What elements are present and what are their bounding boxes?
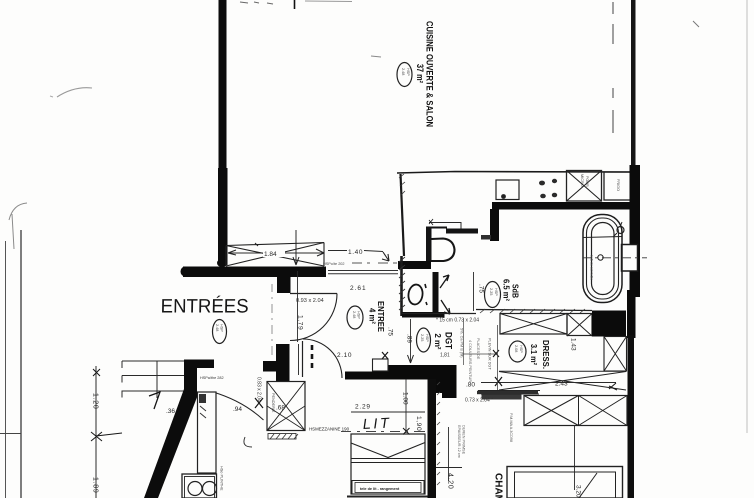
svg-text:P.M.MA A.3CD98: P.M.MA A.3CD98: [509, 413, 513, 442]
svg-text:4 COULEURS PEINTUR: 4 COULEURS PEINTUR: [468, 340, 472, 382]
svg-text:* 15 cm 0.73 x 2.04: * 15 cm 0.73 x 2.04: [436, 318, 479, 324]
svg-text:.36: .36: [166, 408, 175, 415]
svg-text:PLACES DE: PLACES DE: [476, 338, 480, 360]
svg-text:HSP: HSP: [425, 334, 429, 342]
svg-text:1,90: 1,90: [415, 416, 422, 431]
svg-text:2.48: 2.48: [401, 68, 405, 75]
svg-text:CUISINE OUVERTE & SALON: CUISINE OUVERTE & SALON: [425, 21, 435, 127]
svg-text:37 m²: 37 m²: [415, 64, 425, 83]
svg-text:2.43: 2.43: [555, 381, 568, 388]
svg-text:1.00: 1.00: [402, 392, 409, 405]
svg-text:2.08: 2.08: [514, 345, 518, 352]
svg-text:ENTRÉES: ENTRÉES: [160, 295, 248, 318]
svg-text:EPAISSEUR 12 cm: EPAISSEUR 12 cm: [457, 425, 461, 458]
svg-text:FOUR: FOUR: [585, 176, 589, 187]
svg-text:HSPo/te 202: HSPo/te 202: [323, 262, 345, 266]
svg-text:1.84: 1.84: [264, 251, 277, 258]
svg-text:LIT: LIT: [362, 416, 392, 433]
svg-text:HSP: HSP: [494, 288, 498, 296]
svg-text:DRESS.: DRESS.: [541, 340, 551, 369]
svg-text:SdB: SdB: [511, 284, 521, 298]
svg-text:2.25: 2.25: [420, 334, 424, 341]
svg-text:1.43: 1.43: [570, 338, 577, 351]
svg-text:2 m²: 2 m²: [433, 334, 443, 350]
svg-text:ENTREE: ENTREE: [376, 301, 386, 332]
svg-text:tele de lit - rangement: tele de lit - rangement: [360, 487, 400, 491]
svg-text:0.93 x 2.04: 0.93 x 2.04: [296, 298, 324, 304]
svg-text:1,81: 1,81: [440, 353, 450, 359]
svg-text:0.73 x 2.04 *: 0.73 x 2.04 *: [465, 398, 493, 404]
svg-text:2.61: 2.61: [350, 285, 367, 292]
svg-text:PENDERIE: PENDERIE: [271, 393, 275, 413]
svg-text:.75: .75: [387, 327, 394, 336]
svg-text:.75: .75: [478, 284, 485, 293]
svg-text:2.25: 2.25: [489, 288, 493, 295]
svg-text:MICRO: MICRO: [580, 174, 584, 187]
svg-text:1.40: 1.40: [348, 249, 363, 256]
svg-text:CHAMBRE: CHAMBRE: [493, 473, 504, 498]
svg-text:HSP: HSP: [519, 345, 523, 353]
svg-text:3.1 m²: 3.1 m²: [529, 344, 538, 365]
svg-text:FRIGO: FRIGO: [616, 179, 620, 191]
svg-text:.80: .80: [466, 382, 475, 389]
svg-text:2.48: 2.48: [352, 311, 356, 318]
svg-text:2.10: 2.10: [337, 352, 352, 359]
svg-text:HSP: HSP: [406, 68, 410, 76]
svg-text:.68: .68: [276, 405, 285, 412]
svg-text:4 m²: 4 m²: [368, 308, 377, 324]
svg-text:4.20: 4.20: [447, 473, 454, 489]
svg-text:6.5 m²: 6.5 m²: [502, 279, 511, 301]
svg-text:2.29: 2.29: [355, 404, 371, 411]
svg-text:baE de saInteBe: baE de saInteBe: [590, 255, 594, 280]
svg-text:1.20: 1.20: [92, 393, 99, 409]
svg-text:DGT: DGT: [444, 332, 454, 349]
svg-text:HSP: HSP: [357, 311, 361, 319]
svg-text:HSPa/the 282: HSPa/the 282: [200, 376, 224, 380]
svg-text:HSP: HSP: [220, 324, 224, 332]
svg-text:.89: .89: [406, 334, 413, 343]
svg-text:.94: .94: [233, 406, 242, 413]
svg-text:0.83 x 2.04: 0.83 x 2.04: [256, 377, 262, 402]
svg-text:HSo PLINTHE: HSo PLINTHE: [220, 466, 224, 491]
svg-text:2.48: 2.48: [215, 324, 219, 331]
svg-text:1,79: 1,79: [297, 315, 304, 330]
svg-text:1.89: 1.89: [92, 477, 99, 493]
svg-text:DUREN PRIMSE: DUREN PRIMSE: [462, 425, 466, 455]
svg-text:HSMEZZANINE 190: HSMEZZANINE 190: [309, 427, 350, 432]
